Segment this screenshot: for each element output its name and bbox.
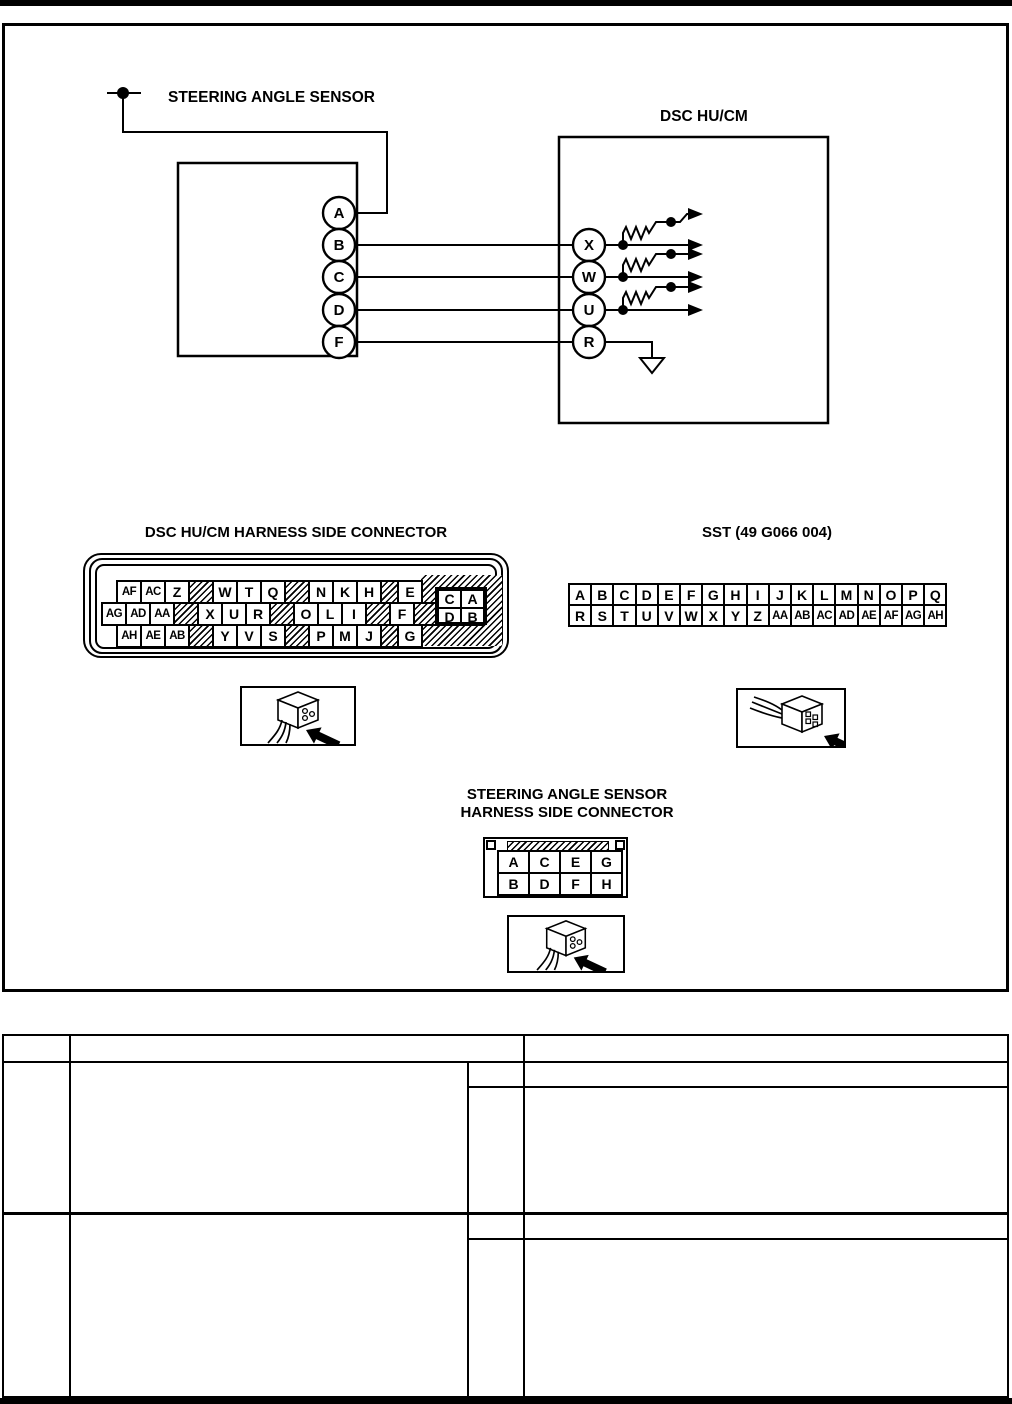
pin-cell: AA: [768, 604, 792, 627]
pin-cell: X: [197, 602, 223, 626]
svg-text:C: C: [334, 269, 345, 286]
pin-cell: R: [568, 604, 592, 627]
svg-text:D: D: [334, 302, 345, 319]
svg-text:R: R: [584, 334, 595, 351]
pin-cell: E: [559, 850, 592, 874]
harness-corner-block: C A D B: [435, 587, 487, 625]
blocked-cavity-cell: [284, 624, 310, 648]
harness-cavity: A: [461, 590, 484, 608]
pin-cell: Y: [723, 604, 747, 627]
pin-cell: Q: [260, 580, 286, 604]
row1-inspection-cell: [71, 1063, 467, 1212]
bottom-black-bar: [0, 1398, 1012, 1404]
pin-cell: L: [317, 602, 343, 626]
svg-text:B: B: [334, 237, 345, 254]
pin-cell: Z: [746, 604, 770, 627]
pin-cell: V: [236, 624, 262, 648]
pin-cell: AE: [857, 604, 881, 627]
header-cell-2: [71, 1036, 523, 1061]
pin-cell: C: [528, 850, 561, 874]
pin-cell: AG: [901, 604, 925, 627]
pin-cell: U: [221, 602, 247, 626]
pin-cell: G: [701, 583, 725, 606]
pin-cell: H: [723, 583, 747, 606]
pin-cell: A: [568, 583, 592, 606]
sst-title: SST (49 G066 004): [568, 524, 966, 542]
sas-title: STEERING ANGLE SENSOR HARNESS SIDE CONNE…: [420, 786, 714, 822]
pin-cell: F: [679, 583, 703, 606]
pin-cell: AE: [140, 624, 166, 648]
housing-tab-right: [615, 840, 625, 850]
pin-cell: N: [308, 580, 334, 604]
sas-title-line2: HARNESS SIDE CONNECTOR: [420, 804, 714, 822]
pin-cell: W: [212, 580, 238, 604]
row1-result-no-cell: [469, 1088, 523, 1212]
pin-cell: AA: [149, 602, 175, 626]
resistor-network-w: [605, 248, 703, 283]
pin-cell: U: [635, 604, 659, 627]
pin-cell: O: [879, 583, 903, 606]
sas-connector-housing: ACEGBDFH: [483, 837, 628, 898]
pin-cell: C: [612, 583, 636, 606]
dsc-connector-view-box: [240, 686, 356, 746]
row1-step-cell: [4, 1063, 69, 1212]
pin-cell: Q: [923, 583, 947, 606]
pin-cell: O: [293, 602, 319, 626]
sensor-pin-f: F: [323, 326, 355, 358]
pin-cell: L: [812, 583, 836, 606]
pin-cell: V: [657, 604, 681, 627]
resistor-network-x: [605, 208, 703, 251]
dsc-pin-u: U: [573, 294, 605, 326]
dsc-pin-w: W: [573, 261, 605, 293]
pin-cell: H: [590, 872, 623, 896]
pin-cell: D: [635, 583, 659, 606]
svg-text:F: F: [334, 334, 343, 351]
pin-cell: H: [356, 580, 382, 604]
blocked-cavity-cell: [188, 580, 214, 604]
dsc-harness-title: DSC HU/CM HARNESS SIDE CONNECTOR: [83, 524, 509, 542]
pin-cell: AF: [116, 580, 142, 604]
resistor-network-u: [605, 281, 703, 316]
pin-cell: B: [590, 583, 614, 606]
harness-cavity: D: [438, 608, 461, 626]
harness-cavity: B: [461, 608, 484, 626]
pin-cell: A: [497, 850, 530, 874]
pin-cell: AC: [140, 580, 166, 604]
pin-cell: AD: [125, 602, 151, 626]
sst-connector-view-box: [736, 688, 846, 748]
row2-action-cell: [525, 1215, 1007, 1396]
pin-cell: I: [341, 602, 367, 626]
pin-cell: K: [332, 580, 358, 604]
results-table: [2, 1034, 1009, 1398]
svg-text:A: A: [334, 205, 345, 222]
blocked-cavity-cell: [188, 624, 214, 648]
pin-cell: AB: [790, 604, 814, 627]
sensor-pin-b: B: [323, 229, 355, 261]
wire-pin-a: [123, 93, 387, 213]
pin-cell: AH: [116, 624, 142, 648]
pin-cell: J: [768, 583, 792, 606]
row1-action-cell: [525, 1063, 1007, 1212]
row2-result-no-cell: [469, 1240, 523, 1396]
pin-cell: AG: [101, 602, 127, 626]
pin-cell: Z: [164, 580, 190, 604]
pin-cell: P: [901, 583, 925, 606]
dsc-pin-x: X: [573, 229, 605, 261]
sst-connector: ABCDEFGHIJKLMNOPQRSTUVWXYZAAABACADAEAFAG…: [568, 583, 946, 627]
ground-symbol: [605, 342, 664, 373]
pin-cell: S: [260, 624, 286, 648]
row2-result-yes-cell: [469, 1215, 523, 1238]
sas-title-line1: STEERING ANGLE SENSOR: [420, 786, 714, 804]
pin-cell: K: [790, 583, 814, 606]
pin-cell: G: [397, 624, 423, 648]
row1-result-yes-cell: [469, 1063, 523, 1086]
pin-cell: M: [834, 583, 858, 606]
pin-cell: P: [308, 624, 334, 648]
sensor-label: STEERING ANGLE SENSOR: [168, 89, 375, 106]
blocked-cavity-cell: [365, 602, 391, 626]
pin-cell: AF: [879, 604, 903, 627]
pin-cell: F: [389, 602, 415, 626]
pin-cell: T: [612, 604, 636, 627]
header-cell-3: [525, 1036, 1007, 1061]
pin-cell: D: [528, 872, 561, 896]
pin-cell: I: [746, 583, 770, 606]
pin-cell: W: [679, 604, 703, 627]
svg-text:U: U: [584, 302, 595, 319]
connector-plug-arrow-icon: [509, 917, 623, 971]
sensor-pin-a: A: [323, 197, 355, 229]
pin-cell: Y: [212, 624, 238, 648]
pin-cell: B: [497, 872, 530, 896]
harness-cavity: C: [438, 590, 461, 608]
sensor-pin-d: D: [323, 294, 355, 326]
sas-connector-view-box: [507, 915, 625, 973]
manual-page: STEERING ANGLE SENSOR DSC HU/CM: [0, 0, 1012, 1404]
pin-cell: T: [236, 580, 262, 604]
pin-cell: J: [356, 624, 382, 648]
pin-cell: S: [590, 604, 614, 627]
pin-cell: E: [397, 580, 423, 604]
pin-cell: AB: [164, 624, 190, 648]
svg-text:X: X: [584, 237, 594, 254]
housing-tab-left: [486, 840, 496, 850]
header-cell-1: [4, 1036, 69, 1061]
pin-cell: X: [701, 604, 725, 627]
row2-step-cell: [4, 1215, 69, 1396]
dsc-label: DSC HU/CM: [660, 108, 748, 125]
blocked-cavity-cell: [269, 602, 295, 626]
dsc-harness-connector: AFACZWTQNKHEAGADAAXUROLIFAHAEABYVSPMJG C…: [83, 553, 509, 658]
sensor-pin-c: C: [323, 261, 355, 293]
connector-plug-arrow-icon: [242, 688, 354, 744]
svg-text:W: W: [582, 269, 597, 286]
pin-cell: F: [559, 872, 592, 896]
pin-cell: AD: [834, 604, 858, 627]
pin-cell: G: [590, 850, 623, 874]
pin-cell: R: [245, 602, 271, 626]
row2-inspection-cell: [71, 1215, 467, 1396]
pin-cell: AH: [923, 604, 947, 627]
pin-cell: M: [332, 624, 358, 648]
pin-cell: N: [857, 583, 881, 606]
dsc-pin-r: R: [573, 326, 605, 358]
blocked-cavity-cell: [284, 580, 310, 604]
blocked-cavity-cell: [173, 602, 199, 626]
pin-cell: E: [657, 583, 681, 606]
connector-plug-arrow-icon: [738, 690, 844, 746]
pin-cell: AC: [812, 604, 836, 627]
